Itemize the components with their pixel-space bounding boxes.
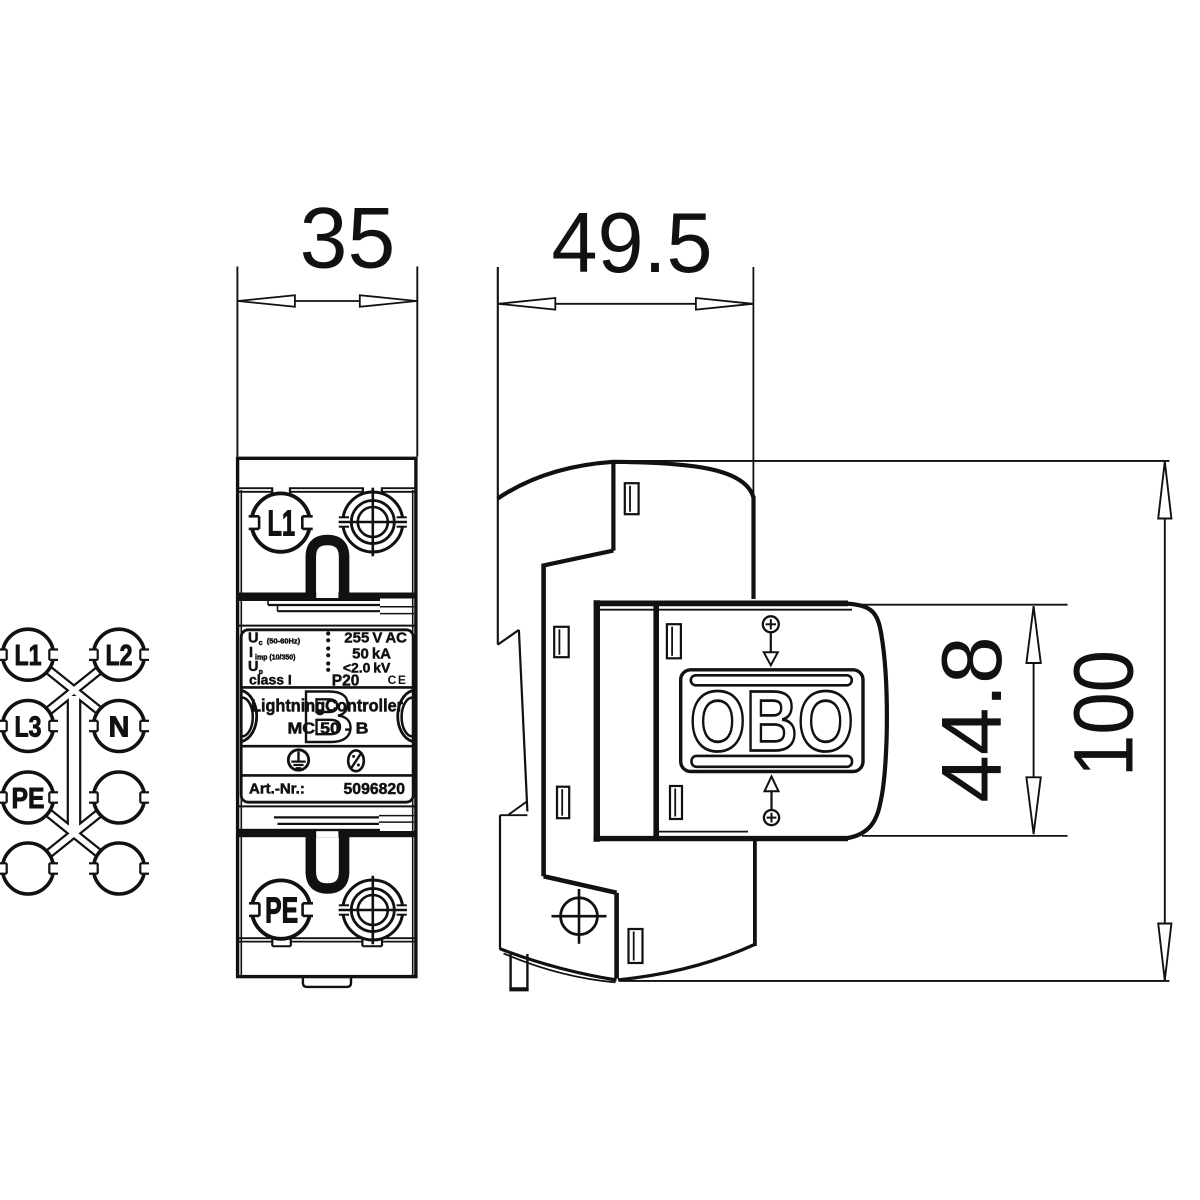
svg-text:class I: class I [249, 672, 292, 688]
svg-text:L3: L3 [15, 712, 42, 744]
svg-text:MC 50 - B: MC 50 - B [288, 720, 369, 737]
svg-text:5096820: 5096820 [344, 781, 406, 798]
svg-text:OBO: OBO [690, 674, 854, 769]
svg-text:49.5: 49.5 [552, 196, 713, 291]
svg-text:255 V AC: 255 V AC [344, 630, 407, 647]
svg-text:L2: L2 [106, 640, 133, 672]
svg-text:CE: CE [388, 673, 408, 687]
svg-text:imp (10/350): imp (10/350) [255, 654, 295, 661]
svg-text:L1: L1 [268, 503, 296, 544]
svg-text:LightningController: LightningController [251, 695, 403, 715]
svg-text:B: B [301, 677, 354, 758]
svg-text:100: 100 [1057, 650, 1151, 777]
svg-text:c: c [259, 640, 263, 647]
svg-text:44.8: 44.8 [925, 636, 1020, 802]
svg-text:(50-60Hz): (50-60Hz) [267, 636, 301, 645]
svg-text:PE: PE [265, 890, 298, 931]
svg-text:Art.-Nr.:: Art.-Nr.: [249, 781, 305, 798]
svg-text:L1: L1 [15, 640, 42, 672]
svg-text:35: 35 [300, 191, 396, 287]
svg-text:N: N [109, 712, 130, 744]
svg-text:PE: PE [12, 783, 45, 815]
